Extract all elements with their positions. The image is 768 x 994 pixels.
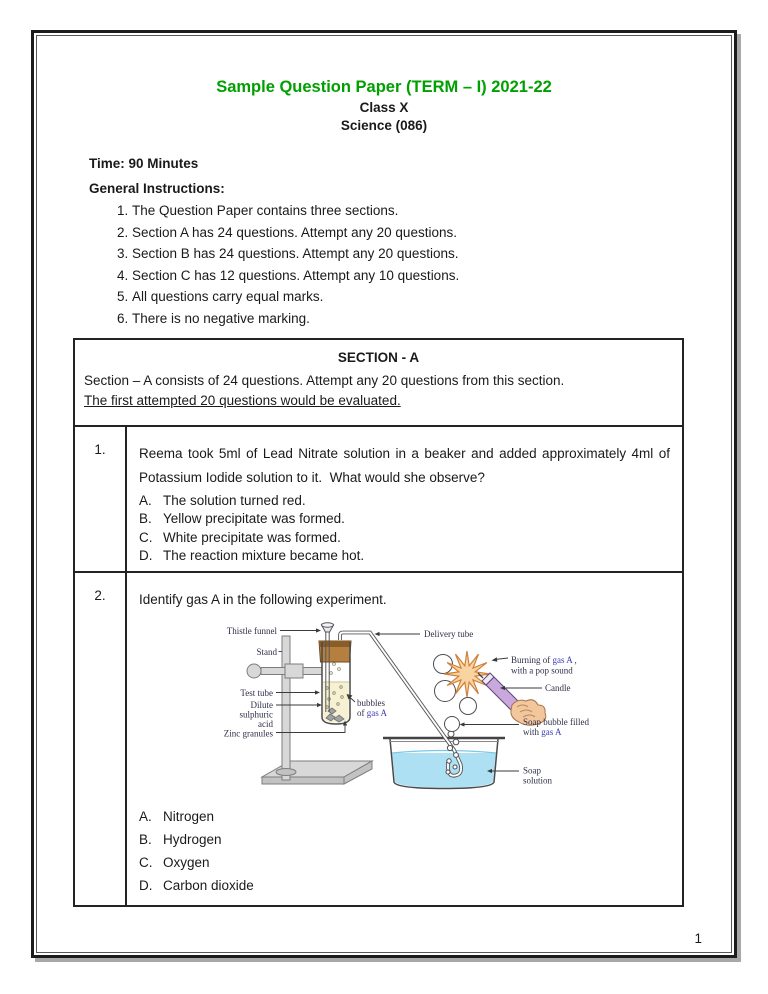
option-a: A.The solution turned red.	[139, 492, 670, 511]
question-number: 1.	[75, 427, 127, 571]
label-thistle-funnel: Thistle funnel	[227, 626, 278, 636]
paper-title: Sample Question Paper (TERM – I) 2021-22	[37, 78, 731, 97]
instruction-item: Section B has 24 questions. Attempt any …	[132, 245, 731, 262]
instruction-item: Section A has 24 questions. Attempt any …	[132, 224, 731, 241]
general-instructions-heading: General Instructions:	[89, 181, 731, 196]
svg-text:solution: solution	[523, 775, 553, 785]
question-cell: Reema took 5ml of Lead Nitrate solution …	[127, 427, 682, 571]
page-number: 1	[694, 931, 702, 946]
option-d: D.Carbon dioxide	[139, 877, 670, 894]
question-text: Reema took 5ml of Lead Nitrate solution …	[139, 442, 670, 490]
option-d: D.The reaction mixture became hot.	[139, 547, 670, 566]
option-b: B.Hydrogen	[139, 831, 670, 848]
section-header: SECTION - A Section – A consists of 24 q…	[75, 340, 682, 427]
experiment-diagram: Thistle funnel Stand Test tube Dilute	[215, 622, 685, 804]
label-candle: Candle	[545, 683, 571, 693]
question-number: 2.	[75, 573, 127, 905]
instruction-item: The Question Paper contains three sectio…	[132, 202, 731, 219]
instruction-item: All questions carry equal marks.	[132, 288, 731, 305]
instruction-item: There is no negative marking.	[132, 310, 731, 327]
svg-text:acid: acid	[258, 719, 273, 729]
time-allowed: Time: 90 Minutes	[89, 156, 731, 171]
label-zinc-granules: Zinc granules	[224, 728, 274, 738]
label-soap-solution: Soap	[523, 765, 542, 775]
section-a-table: SECTION - A Section – A consists of 24 q…	[73, 338, 684, 907]
page-border: Sample Question Paper (TERM – I) 2021-22…	[31, 30, 737, 958]
subject-line: Science (086)	[37, 118, 731, 133]
svg-text:of gas A: of gas A	[357, 708, 388, 718]
options-list: A.The solution turned red. B.Yellow prec…	[139, 492, 670, 566]
label-stand: Stand	[256, 647, 277, 657]
label-soap-bubble: Soap bubble filled	[523, 717, 589, 727]
question-cell: Identify gas A in the following experime…	[127, 573, 682, 905]
option-b: B.Yellow precipitate was formed.	[139, 510, 670, 529]
class-line: Class X	[37, 100, 731, 115]
label-burning-of-gas-a: Burning of gas A ,	[511, 655, 577, 665]
question-text: Identify gas A in the following experime…	[139, 588, 670, 612]
soap-solution-trough	[383, 738, 505, 789]
test-tube	[319, 623, 351, 724]
label-dilute-sulphuric-acid: Dilute	[251, 700, 274, 710]
question-row-1: 1. Reema took 5ml of Lead Nitrate soluti…	[75, 427, 682, 573]
question-row-2: 2. Identify gas A in the following exper…	[75, 573, 682, 905]
page-inner-border: Sample Question Paper (TERM – I) 2021-22…	[36, 35, 732, 953]
option-c: C.Oxygen	[139, 854, 670, 871]
label-bubbles-of-gas-a: bubbles	[357, 698, 385, 708]
svg-text:with gas A: with gas A	[523, 727, 562, 737]
label-test-tube: Test tube	[240, 688, 273, 698]
instruction-item: Section C has 12 questions. Attempt any …	[132, 267, 731, 284]
svg-text:with a pop sound: with a pop sound	[511, 665, 573, 675]
section-note: The first attempted 20 questions would b…	[84, 393, 673, 408]
options-list: A.Nitrogen B.Hydrogen C.Oxygen D.Carbon …	[139, 808, 670, 894]
instructions-list: The Question Paper contains three sectio…	[37, 202, 731, 327]
label-delivery-tube: Delivery tube	[424, 629, 473, 639]
clamp	[247, 664, 323, 678]
option-c: C.White precipitate was formed.	[139, 529, 670, 548]
page-content: Sample Question Paper (TERM – I) 2021-22…	[37, 36, 731, 952]
stand	[262, 636, 372, 784]
svg-text:sulphuric: sulphuric	[240, 709, 274, 719]
section-title: SECTION - A	[84, 350, 673, 365]
section-description: Section – A consists of 24 questions. At…	[84, 373, 673, 388]
option-a: A.Nitrogen	[139, 808, 670, 825]
